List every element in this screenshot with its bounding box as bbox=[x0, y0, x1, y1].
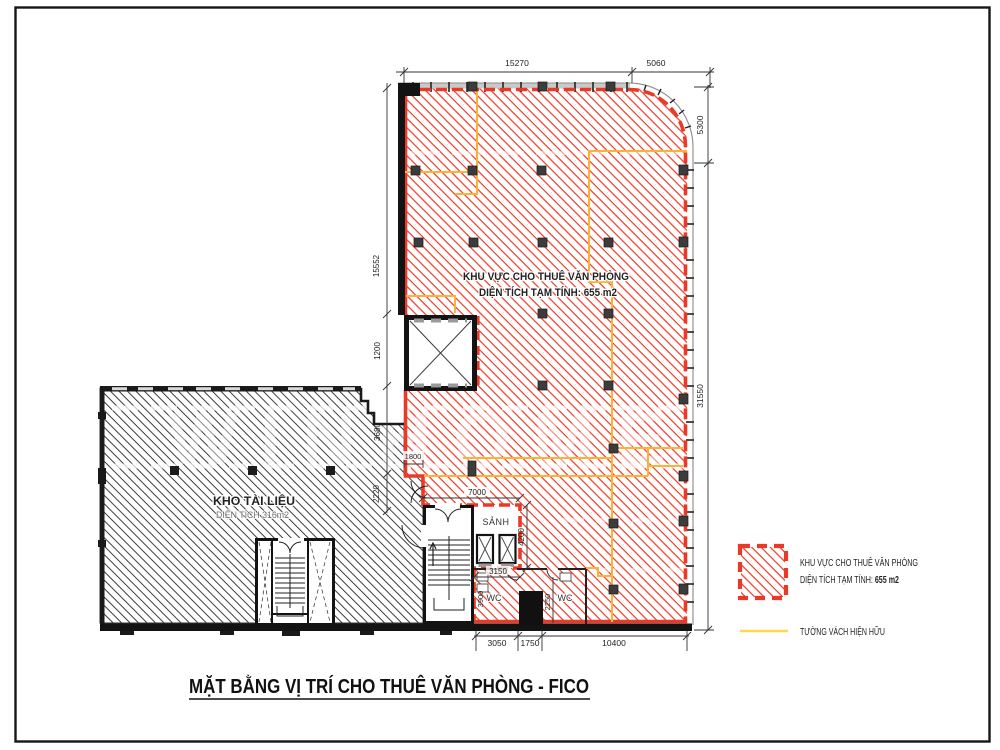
svg-text:5060: 5060 bbox=[647, 58, 666, 68]
svg-text:DIỆN TÍCH 316m2: DIỆN TÍCH 316m2 bbox=[216, 510, 289, 521]
svg-text:WC: WC bbox=[558, 593, 573, 603]
svg-text:2220: 2220 bbox=[372, 485, 381, 503]
svg-text:1800: 1800 bbox=[405, 452, 422, 461]
svg-text:TƯỜNG VÁCH HIỆN HỮU: TƯỜNG VÁCH HIỆN HỮU bbox=[800, 625, 885, 638]
svg-text:DIỆN TÍCH TẠM TÍNH: 655 m2: DIỆN TÍCH TẠM TÍNH: 655 m2 bbox=[800, 573, 899, 586]
svg-text:15552: 15552 bbox=[372, 254, 381, 277]
svg-text:KHO TÀI LIỆU: KHO TÀI LIỆU bbox=[213, 493, 295, 508]
svg-text:4200: 4200 bbox=[517, 528, 526, 546]
svg-text:3150: 3150 bbox=[489, 567, 507, 576]
svg-text:3900: 3900 bbox=[476, 591, 485, 608]
svg-text:WC: WC bbox=[487, 593, 502, 603]
svg-text:1200: 1200 bbox=[373, 342, 382, 360]
svg-text:5300: 5300 bbox=[695, 115, 705, 134]
svg-text:15270: 15270 bbox=[505, 58, 529, 68]
svg-text:KHU VỰC CHO THUÊ VĂN PHÒNG: KHU VỰC CHO THUÊ VĂN PHÒNG bbox=[800, 556, 918, 569]
svg-text:31550: 31550 bbox=[695, 384, 705, 408]
svg-text:SẢNH: SẢNH bbox=[482, 516, 509, 527]
svg-text:2250: 2250 bbox=[543, 594, 552, 611]
svg-text:3050: 3050 bbox=[488, 638, 507, 648]
svg-text:DIỆN TÍCH TẠM TÍNH: 655 m2: DIỆN TÍCH TẠM TÍNH: 655 m2 bbox=[479, 286, 617, 299]
svg-text:1750: 1750 bbox=[521, 638, 540, 648]
svg-text:3680: 3680 bbox=[373, 423, 382, 441]
svg-text:10400: 10400 bbox=[602, 638, 626, 648]
svg-text:MẶT BẰNG VỊ TRÍ CHO THUÊ VĂN P: MẶT BẰNG VỊ TRÍ CHO THUÊ VĂN PHÒNG - FIC… bbox=[189, 674, 589, 698]
svg-text:KHU VỰC CHO THUÊ VĂN PHÒNG: KHU VỰC CHO THUÊ VĂN PHÒNG bbox=[463, 270, 629, 283]
svg-text:7000: 7000 bbox=[468, 488, 486, 497]
